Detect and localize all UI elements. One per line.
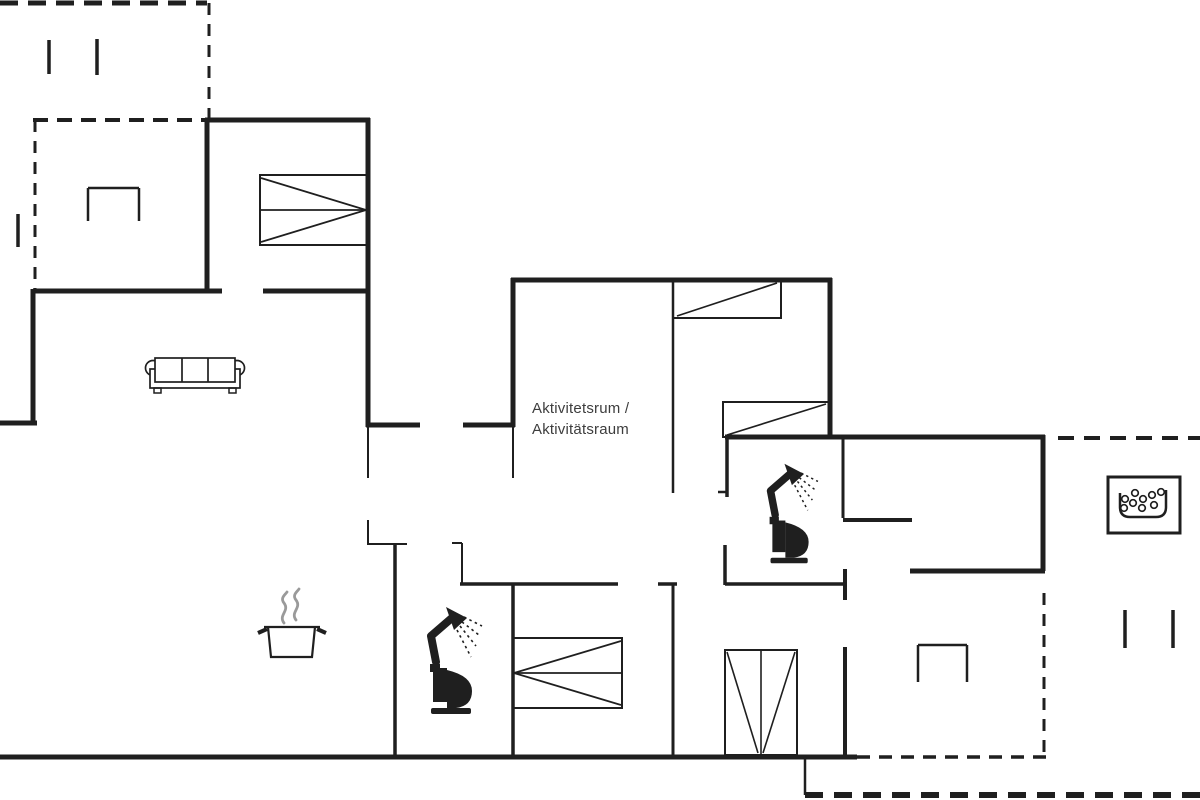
toilet-shower-icon-wc	[430, 607, 482, 714]
double-bed-bedroom-2	[513, 638, 622, 708]
sofa	[146, 358, 245, 393]
bunk-bed-top	[673, 281, 781, 318]
room-label-line-2: Aktivitätsraum	[532, 419, 629, 440]
room-label-line-1: Aktivitetsrum /	[532, 398, 629, 419]
floor-plan-page: Aktivitetsrum / Aktivitätsraum	[0, 0, 1200, 800]
toilet-shower-icon-bathroom	[770, 464, 818, 564]
terrace-bench-1	[88, 188, 139, 221]
terrace-bench-2	[918, 645, 967, 682]
bunk-bed-bottom	[723, 402, 830, 437]
room-label-activity-room: Aktivitetsrum / Aktivitätsraum	[532, 398, 629, 440]
stove-pot-icon	[258, 589, 326, 657]
whirlpool-icon	[1108, 477, 1180, 533]
wardrobe	[725, 650, 797, 755]
double-bed-bedroom-1	[260, 175, 367, 245]
